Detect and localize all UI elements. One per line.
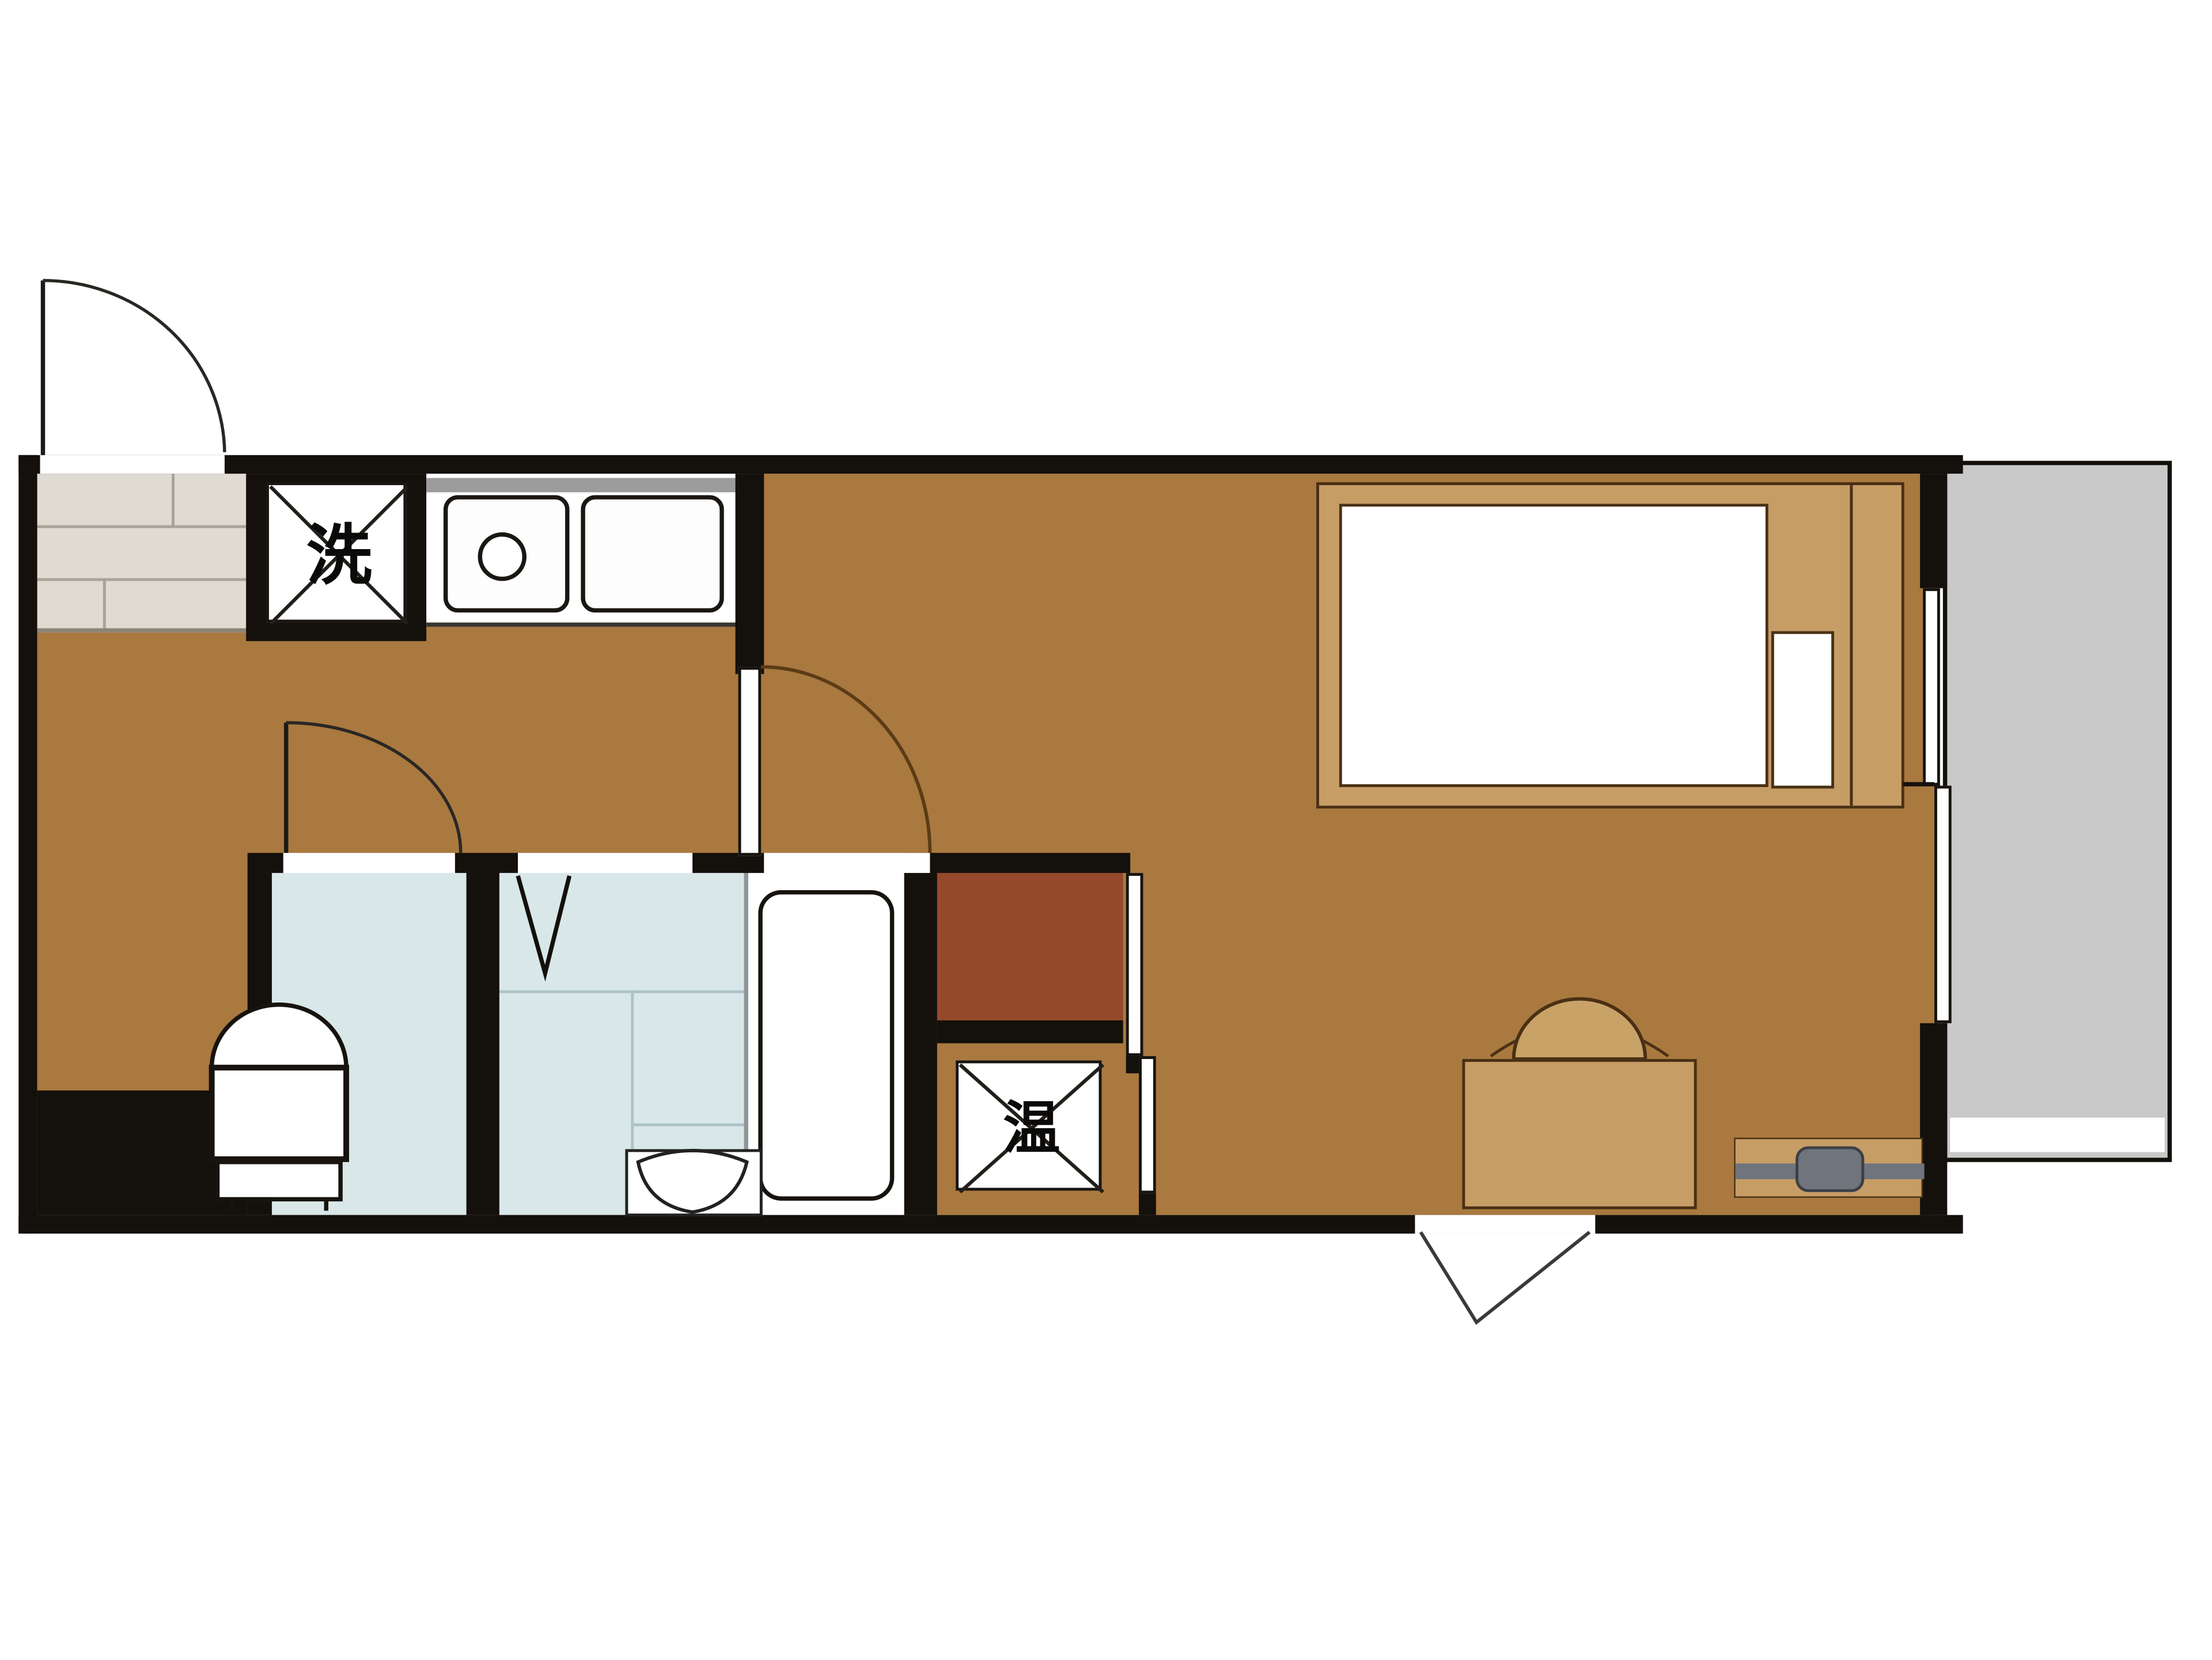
counter-front-edge — [426, 622, 744, 626]
toilet-door-opening — [283, 853, 455, 873]
wall-bottom — [18, 1215, 1963, 1234]
bed-mattress — [1339, 504, 1768, 787]
tile-grout-line — [172, 474, 175, 525]
wall-mid-seg2 — [455, 853, 518, 873]
kitchen-sink — [581, 495, 724, 612]
wall-right-upper — [1920, 474, 1947, 588]
wall-mid-seg4 — [930, 853, 1130, 873]
exit-door-swing-mark — [1421, 1232, 1589, 1322]
wall-bath-closet — [904, 853, 937, 1215]
tile-grout-line — [103, 578, 106, 632]
wall-mid-seg1 — [248, 853, 283, 873]
balcony-window-panel-upper — [1923, 588, 1940, 786]
tv-board — [1734, 1138, 1923, 1198]
exit-door-opening — [1415, 1215, 1595, 1234]
wall-top — [18, 455, 1963, 474]
washing-machine-box: 洗 — [266, 482, 406, 622]
kitchen-backsplash — [426, 478, 744, 493]
bed — [1316, 482, 1904, 808]
tile-grout-line — [37, 578, 247, 581]
stove-unit — [444, 495, 570, 612]
sliding-door-panel-upper — [1126, 873, 1143, 1056]
entrance-door-arc — [43, 281, 225, 452]
wall-toilet-bath — [467, 872, 499, 1215]
wall-toilet-left — [248, 872, 272, 1215]
bath-tile-line — [631, 1124, 748, 1126]
desk — [1462, 1059, 1696, 1209]
floor-plan-canvas: 洗 温 — [0, 0, 2212, 1659]
kitchen-counter — [426, 474, 744, 627]
bath-door-opening — [518, 853, 692, 873]
mainroom-door-opening — [764, 853, 930, 873]
wall-left — [18, 455, 37, 1234]
wall-right-lower — [1920, 1023, 1947, 1215]
closet-bottom-wall — [937, 1020, 1123, 1043]
wall-corner-block — [37, 1091, 248, 1215]
mainroom-door-leaf — [738, 667, 762, 856]
sliding-door-panel-lower — [1139, 1056, 1156, 1193]
genkan-step-edge — [37, 628, 247, 632]
entrance-opening — [40, 455, 225, 474]
entrance-genkan-tiles — [37, 474, 247, 633]
water-heater-label: 温 — [959, 1063, 1104, 1193]
sliding-door-end-stub — [1139, 1193, 1156, 1215]
wall-kitchen-mainroom — [736, 474, 764, 674]
toilet-room-floor — [272, 872, 467, 1215]
tv-unit — [1796, 1146, 1864, 1192]
water-heater-box: 温 — [956, 1060, 1101, 1190]
bed-headboard-line — [1850, 485, 1853, 806]
bath-divider-line — [744, 872, 748, 1215]
bed-pillow — [1771, 631, 1834, 788]
balcony — [1943, 461, 2172, 1162]
floor-plan: 洗 温 — [0, 0, 2212, 1660]
closet — [937, 873, 1123, 1020]
washing-machine-label: 洗 — [269, 485, 409, 625]
bath-tile-line — [631, 990, 634, 1215]
wall-mid-seg3 — [692, 853, 764, 873]
stove-burner — [478, 532, 527, 581]
sliding-door-joint — [1126, 1056, 1139, 1073]
bathtub — [758, 890, 894, 1201]
bath-tile-line — [499, 990, 748, 993]
tile-grout-line — [37, 525, 247, 528]
balcony-edge-strip — [1950, 1118, 2165, 1152]
bathroom-floor — [499, 872, 748, 1215]
balcony-window-panel-lower — [1934, 786, 1952, 1023]
